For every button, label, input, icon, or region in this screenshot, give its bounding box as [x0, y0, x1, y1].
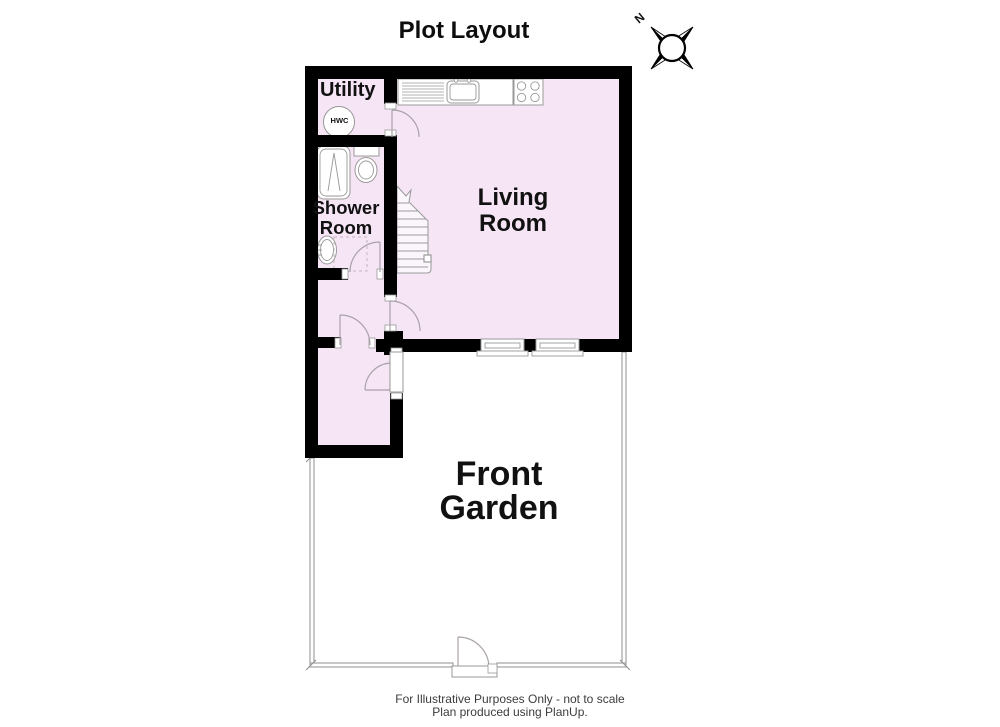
- kitchen-sink-unit-icon: [398, 79, 513, 105]
- disclaimer-line-2: Plan produced using PlanUp.: [335, 706, 685, 719]
- floorplan-drawing: [0, 0, 1000, 727]
- page-title: Plot Layout: [364, 18, 564, 44]
- hob-icon: [514, 79, 543, 105]
- room-label-living-room: Living Room: [453, 185, 573, 237]
- front-door-leaf: [390, 352, 403, 392]
- floorplan-page: Plot Layout N Utility HWC Shower Room Li…: [0, 0, 1000, 727]
- toilet-icon: [354, 146, 379, 183]
- disclaimer-text: For Illustrative Purposes Only - not to …: [335, 693, 685, 719]
- building-interior: [318, 79, 619, 445]
- room-label-utility: Utility: [320, 80, 382, 102]
- room-label-hwc: HWC: [324, 117, 355, 125]
- room-label-shower-room: Shower Room: [302, 198, 390, 238]
- compass-rose-icon: [651, 27, 693, 69]
- bath-icon: [317, 146, 350, 199]
- room-label-front-garden: Front Garden: [419, 457, 579, 525]
- garden-gate-icon: [452, 637, 497, 677]
